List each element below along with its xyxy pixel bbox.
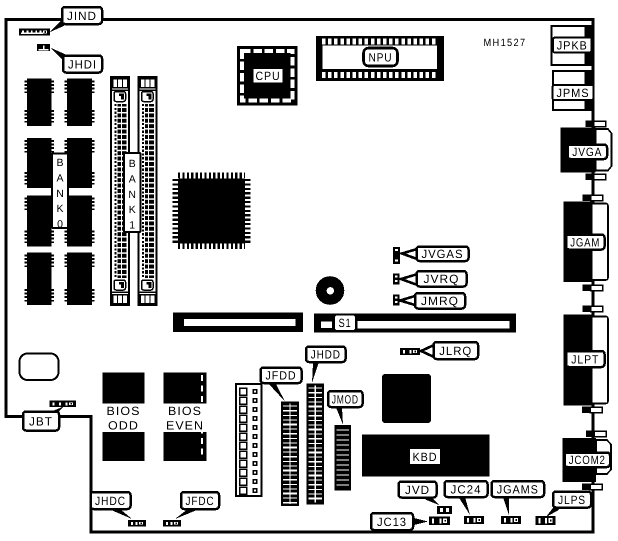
svg-text:1: 1	[129, 220, 135, 232]
svg-text:JC24: JC24	[451, 482, 482, 496]
svg-text:JPMS: JPMS	[557, 86, 590, 100]
svg-text:JLRQ: JLRQ	[439, 344, 472, 358]
svg-text:JC13: JC13	[377, 515, 407, 529]
svg-text:CPU: CPU	[256, 69, 281, 83]
svg-text:JLPS: JLPS	[558, 493, 586, 507]
svg-text:JVGAS: JVGAS	[422, 247, 464, 261]
svg-text:BIOS: BIOS	[107, 404, 141, 418]
svg-text:JGAM: JGAM	[570, 235, 600, 249]
svg-text:JHDI: JHDI	[68, 57, 97, 71]
svg-text:JPKB: JPKB	[557, 38, 588, 52]
svg-text:JGAMS: JGAMS	[497, 482, 539, 496]
svg-text:N: N	[128, 189, 136, 201]
svg-text:NPU: NPU	[369, 50, 393, 64]
svg-text:JMOD: JMOD	[332, 392, 359, 406]
svg-text:JHDD: JHDD	[311, 348, 341, 362]
svg-text:JLPT: JLPT	[571, 352, 599, 366]
svg-text:JVD: JVD	[405, 483, 430, 497]
svg-text:JVGA: JVGA	[572, 145, 602, 159]
svg-text:A: A	[56, 172, 63, 184]
svg-text:BIOS: BIOS	[168, 404, 202, 418]
svg-text:JHDC: JHDC	[95, 494, 126, 508]
svg-text:B: B	[129, 158, 136, 170]
svg-text:B: B	[56, 157, 63, 169]
svg-text:K: K	[129, 204, 136, 216]
svg-text:ODD: ODD	[108, 419, 139, 433]
svg-text:0: 0	[57, 219, 63, 231]
svg-text:KBD: KBD	[413, 450, 438, 464]
svg-text:K: K	[56, 203, 63, 215]
svg-text:MH1527: MH1527	[484, 37, 527, 49]
svg-text:JMRQ: JMRQ	[421, 294, 459, 308]
svg-text:A: A	[129, 173, 136, 185]
svg-text:JIND: JIND	[67, 9, 97, 23]
svg-text:EVEN: EVEN	[166, 419, 204, 433]
svg-text:N: N	[56, 188, 64, 200]
svg-text:JCOM2: JCOM2	[569, 453, 606, 467]
svg-text:S1: S1	[339, 316, 352, 330]
svg-text:JBT: JBT	[29, 414, 53, 428]
svg-text:JFDD: JFDD	[266, 369, 297, 383]
svg-text:JFDC: JFDC	[186, 494, 215, 508]
svg-text:JVRQ: JVRQ	[424, 272, 460, 286]
